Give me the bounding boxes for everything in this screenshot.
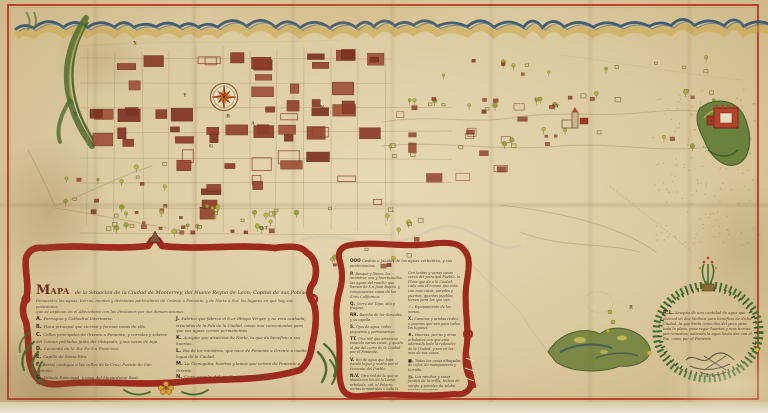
paper-bottom-edge xyxy=(0,402,768,413)
legend-entry: O. Ojo de agua, sitio grande y permanent… xyxy=(176,383,308,385)
legend-entry: N.V. Otra red de la que se abastecen los… xyxy=(350,373,403,390)
south-hill xyxy=(548,328,650,371)
legend-entry: G. Palacio Episcopal, y casa del Mayordo… xyxy=(36,375,168,382)
title-cartouche: MAPA de la Situacion de la Ciudad de Mon… xyxy=(36,280,310,384)
map-marker-R: R xyxy=(629,306,633,311)
signature-flourish xyxy=(686,353,734,375)
legend-entry: D. Convento de N. R.e P.e S.n Francisco. xyxy=(36,346,168,353)
legend-entry: Q. Cerro del Topo, alto y fragoso. xyxy=(350,301,403,311)
legend-entry: RR. Rancho de los Gonzalez, y su capilla… xyxy=(350,312,403,322)
legend-entry: J. Fabrica que fabrico el S.or Obispo Ve… xyxy=(176,316,308,333)
legend-entry: X. Caminos y sendas reales, o puertas qu… xyxy=(408,316,461,331)
chapel-building xyxy=(562,107,588,128)
map-subtitle-1: Demuestra las aguas, tierras, montes y d… xyxy=(36,298,310,309)
historic-map-of-monterrey: MAPA de la Situacion de la Ciudad de Mon… xyxy=(0,0,768,413)
map-marker-YY: YY xyxy=(553,105,559,110)
legend-middle-heading: OOO Casitas o Jacales de las aguas verti… xyxy=(350,258,462,269)
legend-entry: ✓. Equipamiento de las norias. xyxy=(408,304,461,314)
legend-entry: K. Acequia que atraviesa de Norte, la qu… xyxy=(176,335,308,347)
legend-cartouche-2: OOO Casitas o Jacales de las aguas verti… xyxy=(350,258,462,390)
map-marker-N: N xyxy=(320,106,324,111)
legend-entry: M. La Cieneguita; huertas y lomas que co… xyxy=(176,361,308,373)
legend-entry: F. Barrio contiguo a las calles de la Cr… xyxy=(36,362,168,374)
legend-entry: Con tantas y varias casas cerca del prin… xyxy=(408,271,461,303)
legend-entry: ♣. Huertas, parras y otras arboledas con… xyxy=(408,332,461,356)
map-marker-X: X xyxy=(133,42,137,47)
legend-column-j-o: J. Fabrica que fabrico el S.or Obispo Ve… xyxy=(176,316,308,384)
legend-entry: A. Parroquia y Cathedral Interinaria. xyxy=(36,316,168,323)
title-word: APA xyxy=(50,286,69,296)
legend-entry: V. Rio de agua que baja dando legua y me… xyxy=(350,357,403,372)
legend-entry: E. Capilla de Santa Rita. xyxy=(36,354,168,361)
compass-rose xyxy=(211,84,238,111)
wreath-note: R.L. Acequia de una cantidad de agua que… xyxy=(663,310,755,342)
legend-entry: L. Rio de los ministros, que nace de Pon… xyxy=(176,348,308,360)
legend-entry: TT. Una red que atraviesa estando varias… xyxy=(350,336,403,355)
legend-entry: C. Calles principales de Oriente a Ponie… xyxy=(36,332,168,344)
legend-entry: H. Hospicio que antiguamente se cuido de… xyxy=(36,383,168,384)
legend-entry: ■. Todas las casas dibujadas de color, d… xyxy=(408,358,461,373)
map-marker-Q.T.: Q.T. xyxy=(259,227,269,232)
title-initial: M xyxy=(36,283,50,298)
legend-column-p-nv: P. Bosque y llanos; los ministros rios y… xyxy=(350,271,403,390)
legend-column-a-i: A. Parroquia y Cathedral Interinaria.B. … xyxy=(36,316,168,384)
legend-entry: ▤. Los ranchos y casas jacales de la ori… xyxy=(408,374,461,390)
map-marker-G: G xyxy=(209,145,213,150)
map-subtitle-2: que se explican en el Abecedario con las… xyxy=(36,309,310,314)
city-blocks-and-houses xyxy=(63,46,760,268)
title-rest: de la Situacion de la Ciudad de Monterre… xyxy=(75,290,310,296)
map-marker-T: T xyxy=(73,113,76,118)
sierra-mountain-range xyxy=(16,19,768,36)
map-marker-B: B xyxy=(226,115,230,120)
legend-entry: P. Bosque y llanos; los ministros rios y… xyxy=(350,271,403,299)
map-title: MAPA de la Situacion de la Ciudad de Mon… xyxy=(36,280,310,298)
legend-entry: B. Plaza principal que cierran y forman … xyxy=(36,324,168,331)
map-marker-A: A xyxy=(251,122,255,127)
legend-column-symbols: Con tantas y varias casas cerca del prin… xyxy=(408,271,461,390)
legend-entry: S. Ojos de agua, todos pequenos y perman… xyxy=(350,324,403,334)
map-marker-Y: Y xyxy=(183,94,186,99)
legend-entry: N. Cerro grande, del que llaman de la Si… xyxy=(176,374,308,381)
